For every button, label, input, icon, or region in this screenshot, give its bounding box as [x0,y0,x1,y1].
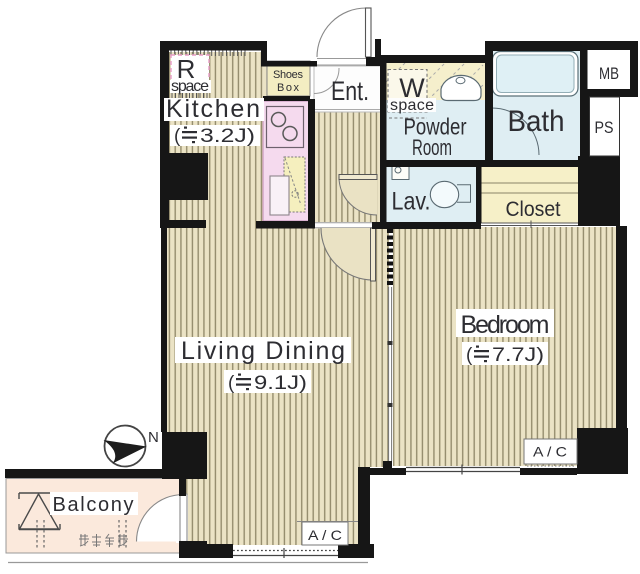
svg-text:A / C: A / C [533,444,567,460]
svg-text:Bedroom: Bedroom [461,311,550,339]
svg-text:MB: MB [599,64,619,83]
svg-text:Balcony: Balcony [53,494,134,516]
svg-text:PS: PS [595,118,614,137]
svg-text:(: ( [228,373,235,394]
svg-text:A / C: A / C [308,527,342,543]
svg-text:space: space [390,97,434,114]
svg-text:9.1J): 9.1J) [254,373,307,394]
svg-text:space: space [171,78,209,95]
svg-text:N: N [148,429,159,446]
svg-text:Bath: Bath [508,105,565,138]
svg-text:Shoes: Shoes [273,69,304,81]
svg-text:7.7J): 7.7J) [492,345,544,366]
svg-text:(: ( [174,126,181,147]
svg-text:Room: Room [412,135,452,160]
svg-text:Lav.: Lav. [392,188,431,216]
svg-text:Closet: Closet [506,198,561,221]
svg-text:Living Dining: Living Dining [181,337,345,365]
svg-text:Ent.: Ent. [331,76,369,106]
svg-text:Box: Box [277,82,300,94]
svg-text:(: ( [466,345,473,366]
svg-text:3.2J): 3.2J) [200,126,255,147]
